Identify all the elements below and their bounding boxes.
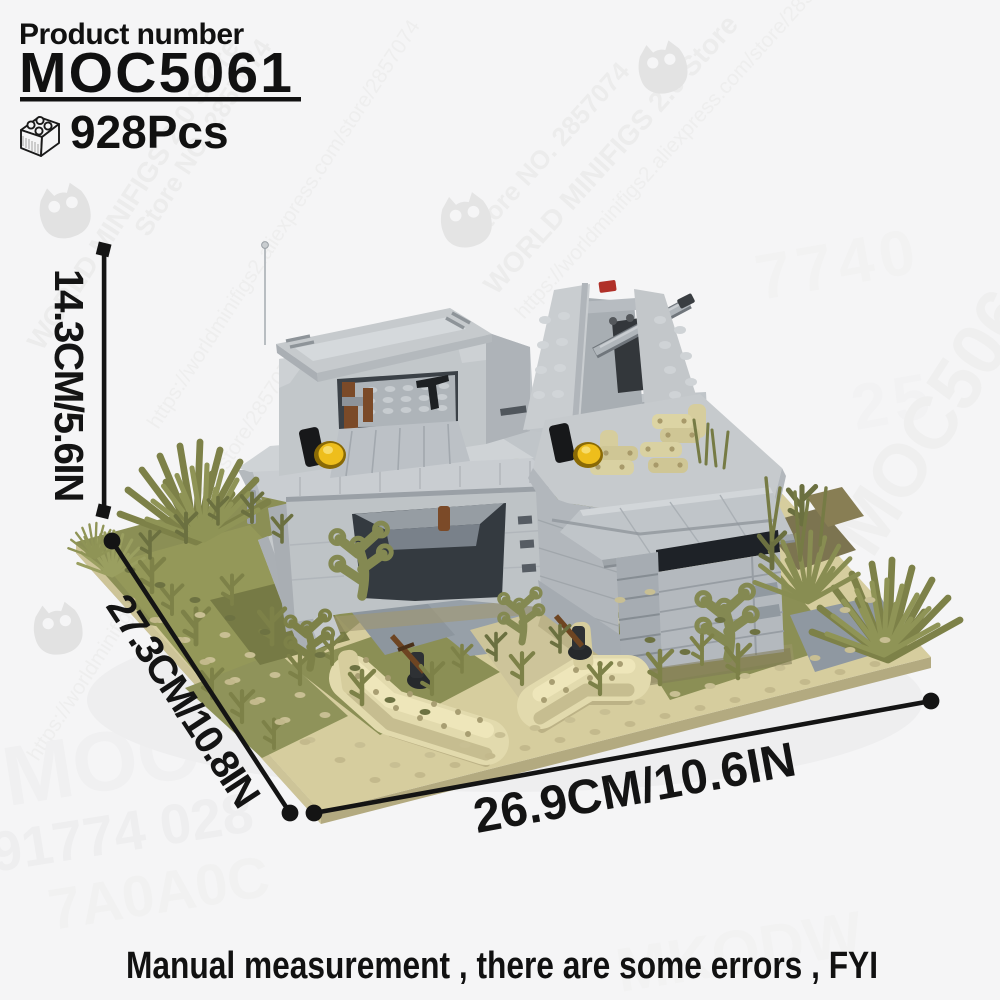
svg-text:Manual measurement , there are: Manual measurement , there are some erro… xyxy=(126,945,878,987)
svg-text:928Pcs: 928Pcs xyxy=(70,106,229,158)
svg-text:MOC5061: MOC5061 xyxy=(19,41,294,105)
svg-text:14.3CM/5.6IN: 14.3CM/5.6IN xyxy=(46,269,92,501)
